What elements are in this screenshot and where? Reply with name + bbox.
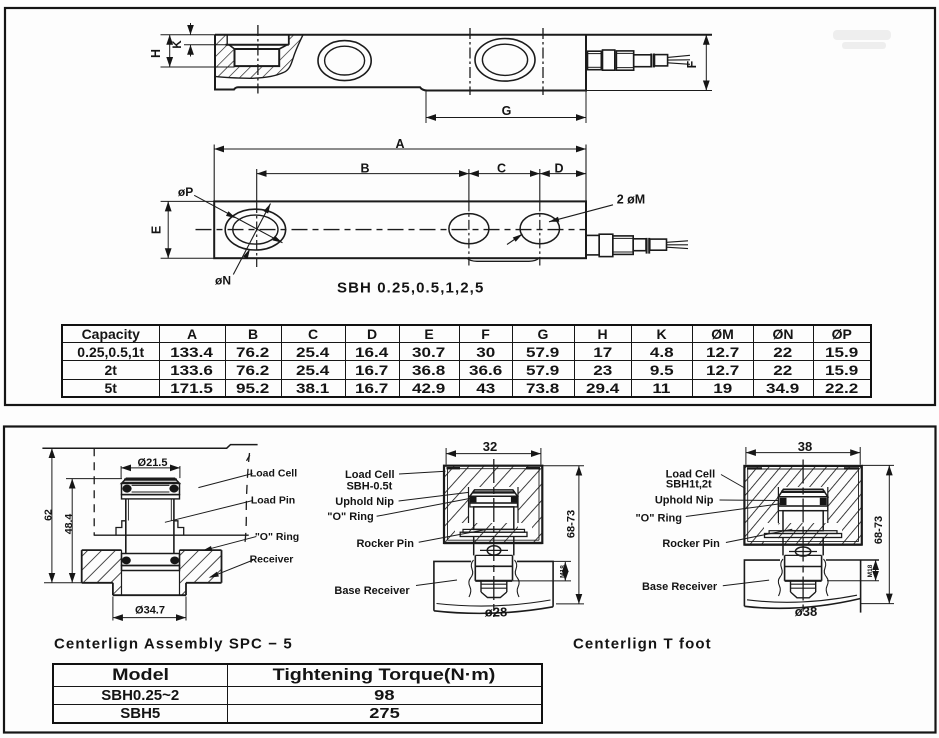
- svg-text:ø38: ø38: [795, 604, 817, 619]
- svg-text:Centerlign T foot: Centerlign T foot: [573, 636, 712, 653]
- svg-text:Load Cell: Load Cell: [345, 469, 395, 481]
- svg-text:68-73: 68-73: [566, 510, 578, 538]
- svg-text:C: C: [497, 162, 506, 176]
- svg-text:Uphold Nip: Uphold Nip: [655, 495, 714, 507]
- svg-text:K: K: [172, 40, 184, 49]
- svg-text:F: F: [685, 60, 699, 68]
- svg-text:M18: M18: [560, 565, 567, 578]
- svg-text:D: D: [554, 162, 563, 176]
- svg-text:øN: øN: [215, 274, 231, 288]
- svg-text:G: G: [502, 104, 512, 118]
- svg-text:Receiver: Receiver: [250, 554, 294, 566]
- svg-text:Load Cell: Load Cell: [250, 468, 297, 480]
- svg-text:"O" Ring: "O" Ring: [327, 511, 373, 523]
- svg-text:32: 32: [483, 439, 497, 454]
- svg-text:Rocker Pin: Rocker Pin: [662, 538, 720, 550]
- svg-text:Uphold Nip: Uphold Nip: [335, 496, 394, 508]
- svg-text:M18: M18: [867, 564, 874, 577]
- svg-text:SBH 0.25,0.5,1,2,5: SBH 0.25,0.5,1,2,5: [337, 280, 484, 297]
- svg-text:H: H: [149, 49, 163, 58]
- svg-text:"O" Ring: "O" Ring: [635, 513, 681, 525]
- svg-text:Base Receiver: Base Receiver: [334, 585, 410, 597]
- svg-text:2 øM: 2 øM: [617, 193, 645, 207]
- svg-text:ø28: ø28: [485, 605, 507, 620]
- svg-text:Ø34.7: Ø34.7: [135, 605, 165, 617]
- svg-text:Base Receiver: Base Receiver: [642, 581, 718, 593]
- svg-text:38: 38: [798, 439, 812, 454]
- svg-text:Rocker Pin: Rocker Pin: [356, 538, 414, 550]
- svg-text:Load Pin: Load Pin: [251, 495, 295, 507]
- svg-text:68-73: 68-73: [873, 516, 885, 544]
- svg-text:62: 62: [43, 509, 55, 521]
- svg-text:48.4: 48.4: [63, 514, 75, 535]
- svg-text:Centerlign Assembly SPC − 5: Centerlign Assembly SPC − 5: [54, 636, 293, 653]
- svg-text:Ø21.5: Ø21.5: [138, 457, 168, 469]
- svg-text:øP: øP: [178, 185, 193, 199]
- svg-text:SBH-0.5t: SBH-0.5t: [346, 480, 392, 492]
- svg-text:SBH1t,2t: SBH1t,2t: [666, 478, 712, 490]
- svg-text:B: B: [360, 162, 369, 176]
- svg-text:A: A: [395, 137, 404, 151]
- svg-text:"O" Ring: "O" Ring: [255, 531, 299, 543]
- svg-text:E: E: [150, 226, 164, 234]
